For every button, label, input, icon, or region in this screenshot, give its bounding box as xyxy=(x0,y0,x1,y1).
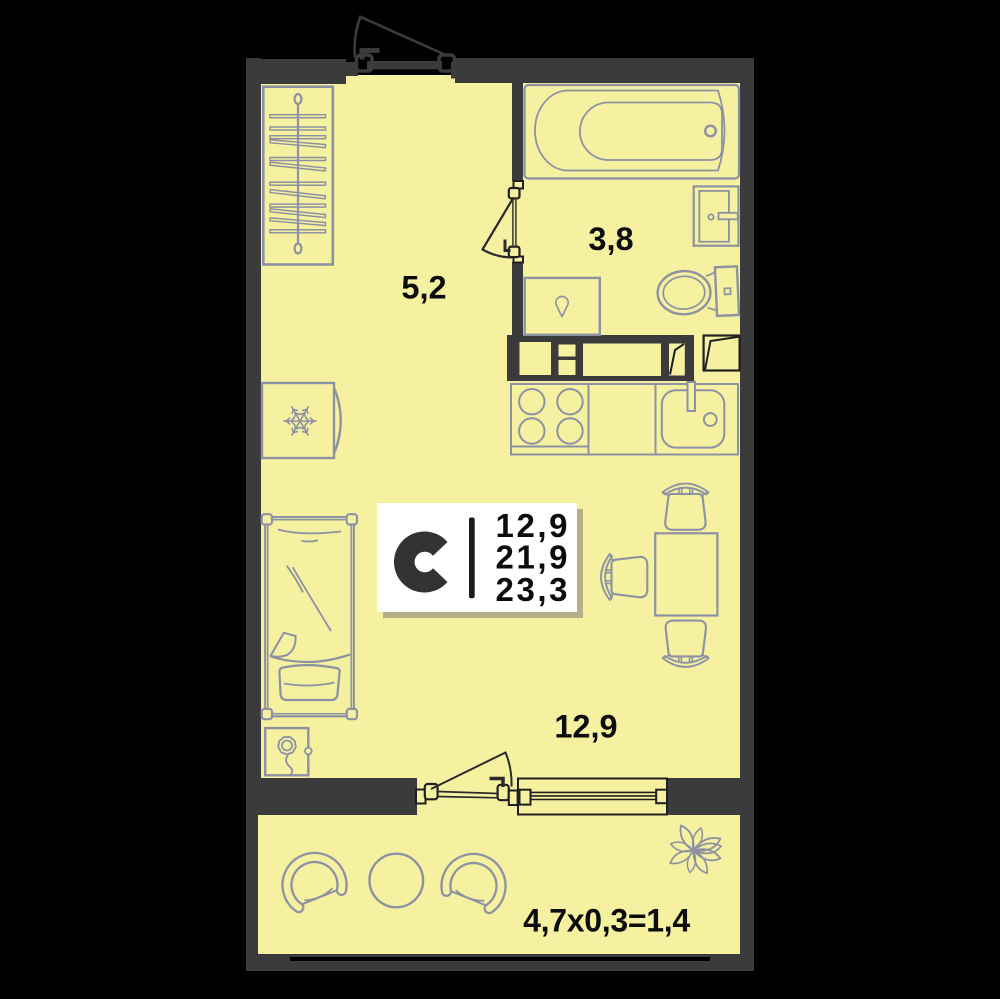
svg-text:21,9: 21,9 xyxy=(496,539,571,576)
svg-text:12,9: 12,9 xyxy=(554,709,617,745)
svg-text:23,3: 23,3 xyxy=(496,571,571,608)
svg-text:5,2: 5,2 xyxy=(401,270,446,306)
svg-text:3,8: 3,8 xyxy=(588,221,633,257)
svg-text:4,7x0,3=1,4: 4,7x0,3=1,4 xyxy=(523,903,690,939)
